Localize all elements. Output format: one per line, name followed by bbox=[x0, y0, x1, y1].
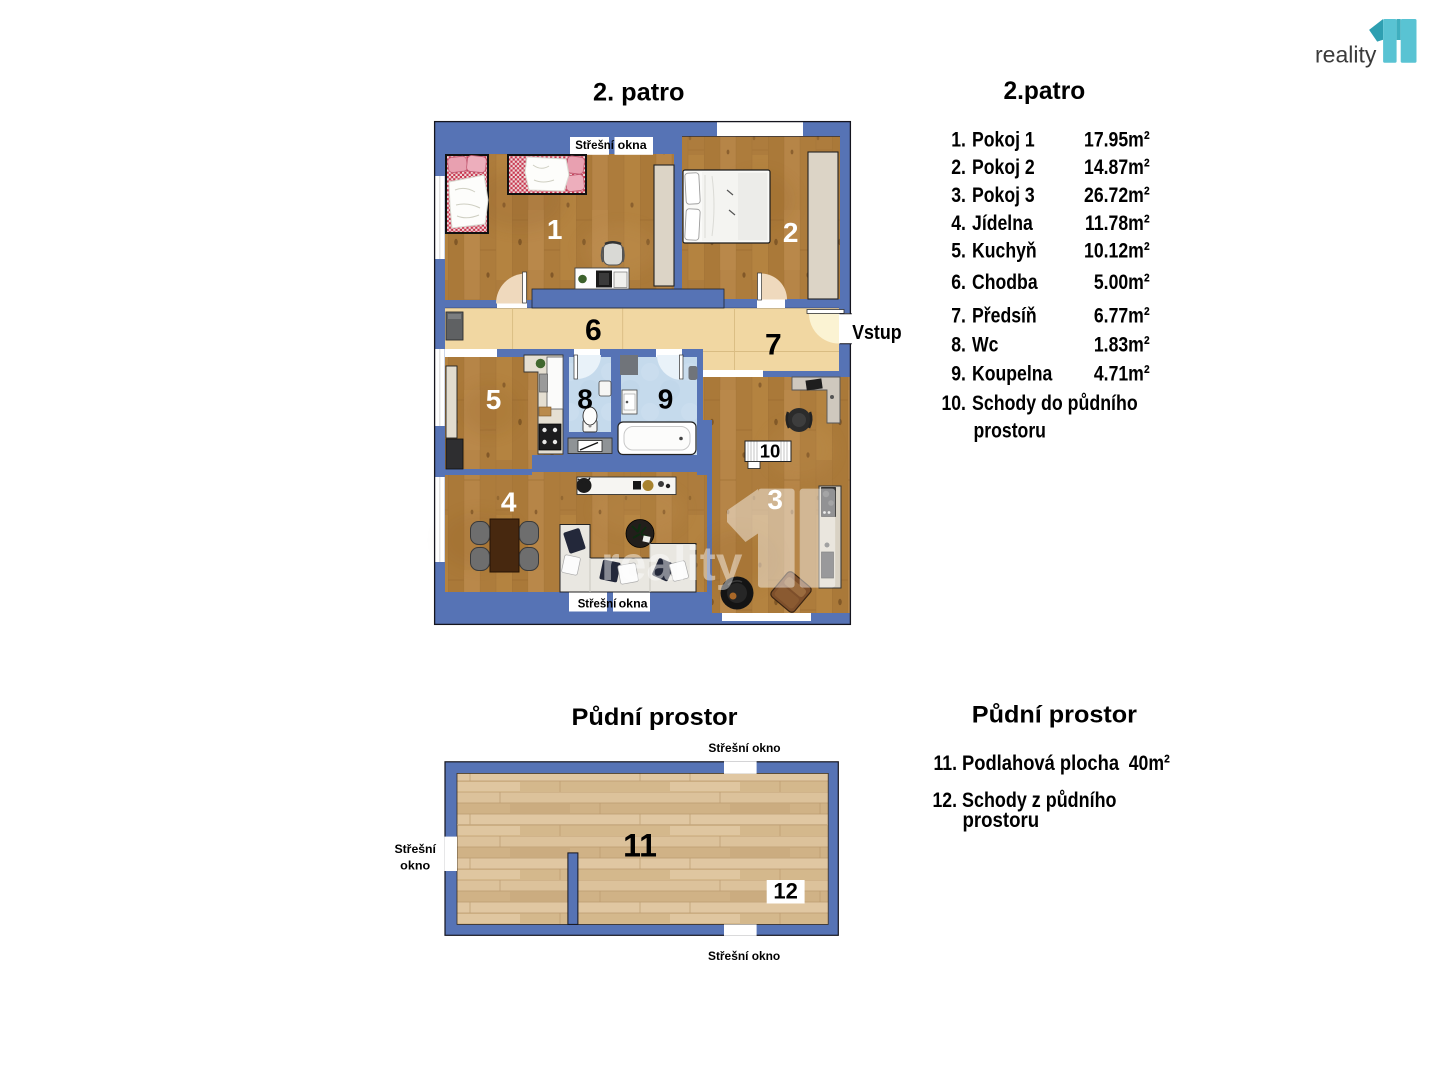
svg-text:10.: 10. bbox=[941, 391, 966, 415]
svg-text:Pokoj 2: Pokoj 2 bbox=[972, 155, 1035, 179]
svg-text:40m²: 40m² bbox=[1129, 751, 1171, 775]
svg-text:11.78m²: 11.78m² bbox=[1085, 211, 1150, 235]
svg-text:1.83m²: 1.83m² bbox=[1094, 333, 1150, 357]
svg-text:7: 7 bbox=[765, 329, 782, 362]
svg-text:6.77m²: 6.77m² bbox=[1094, 304, 1150, 328]
svg-text:prostoru: prostoru bbox=[963, 809, 1040, 833]
svg-text:12.: 12. bbox=[933, 788, 958, 812]
svg-text:4.: 4. bbox=[951, 211, 966, 235]
svg-text:12: 12 bbox=[773, 879, 797, 904]
svg-text:Střešní: Střešní bbox=[394, 842, 436, 856]
svg-text:Vstup: Vstup bbox=[852, 322, 902, 344]
svg-text:prostoru: prostoru bbox=[974, 419, 1046, 443]
svg-text:reality: reality bbox=[601, 538, 743, 591]
svg-text:Kuchyň: Kuchyň bbox=[972, 239, 1037, 263]
svg-text:8.: 8. bbox=[951, 333, 966, 357]
svg-text:11: 11 bbox=[623, 828, 657, 864]
svg-text:3.: 3. bbox=[951, 183, 966, 207]
svg-text:1: 1 bbox=[547, 214, 563, 245]
svg-text:6: 6 bbox=[585, 314, 602, 347]
svg-text:7.: 7. bbox=[951, 304, 966, 328]
svg-text:17.95m²: 17.95m² bbox=[1084, 128, 1150, 152]
svg-text:10.12m²: 10.12m² bbox=[1084, 239, 1150, 263]
svg-text:10: 10 bbox=[760, 441, 781, 462]
svg-text:Jídelna: Jídelna bbox=[972, 211, 1034, 235]
svg-text:Střešní: Střešní bbox=[578, 596, 617, 610]
svg-text:2. patro: 2. patro bbox=[593, 79, 685, 107]
svg-text:Podlahová plocha: Podlahová plocha bbox=[962, 751, 1120, 775]
svg-text:4.71m²: 4.71m² bbox=[1094, 362, 1150, 386]
svg-text:26.72m²: 26.72m² bbox=[1084, 183, 1150, 207]
svg-text:9.: 9. bbox=[951, 362, 966, 386]
svg-text:1.: 1. bbox=[951, 128, 966, 152]
svg-text:okna: okna bbox=[618, 138, 647, 152]
svg-text:Střešní: Střešní bbox=[575, 138, 614, 152]
svg-text:4: 4 bbox=[501, 487, 517, 518]
svg-text:Předsíň: Předsíň bbox=[972, 304, 1037, 328]
svg-text:Koupelna: Koupelna bbox=[972, 362, 1053, 386]
svg-text:Půdní prostor: Půdní prostor bbox=[572, 704, 738, 731]
svg-text:8: 8 bbox=[577, 384, 593, 415]
svg-text:11.: 11. bbox=[933, 751, 957, 775]
svg-text:Střešní okno: Střešní okno bbox=[708, 949, 781, 963]
svg-text:Střešní okno: Střešní okno bbox=[708, 741, 781, 755]
svg-text:2.: 2. bbox=[951, 155, 966, 179]
svg-text:Pokoj 1: Pokoj 1 bbox=[972, 128, 1035, 152]
svg-text:5.00m²: 5.00m² bbox=[1094, 270, 1150, 294]
svg-text:Chodba: Chodba bbox=[972, 270, 1039, 294]
svg-text:reality: reality bbox=[1315, 42, 1377, 68]
svg-text:okno: okno bbox=[400, 858, 430, 872]
svg-text:5: 5 bbox=[486, 384, 502, 415]
svg-text:5.: 5. bbox=[951, 239, 966, 263]
svg-text:6.: 6. bbox=[951, 270, 966, 294]
svg-text:9: 9 bbox=[658, 384, 674, 415]
svg-text:okna: okna bbox=[619, 596, 648, 610]
svg-text:2.patro: 2.patro bbox=[1004, 77, 1086, 105]
svg-text:2: 2 bbox=[783, 217, 799, 248]
svg-text:14.87m²: 14.87m² bbox=[1084, 155, 1150, 179]
svg-text:Půdní prostor: Půdní prostor bbox=[972, 702, 1137, 729]
svg-text:Schody do půdního: Schody do půdního bbox=[972, 391, 1138, 415]
svg-text:Wc: Wc bbox=[972, 333, 999, 357]
svg-text:Pokoj 3: Pokoj 3 bbox=[972, 183, 1035, 207]
